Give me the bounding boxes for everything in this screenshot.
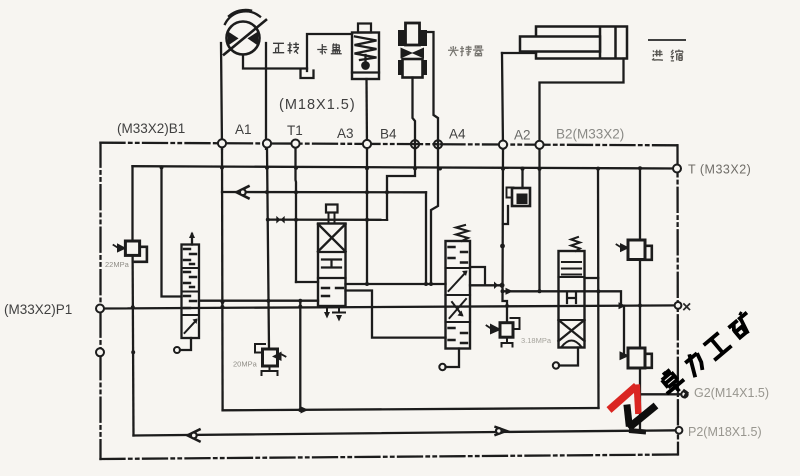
- svg-text:(M18X1.5): (M18X1.5): [279, 97, 356, 113]
- svg-text:(M33X2)B1: (M33X2)B1: [117, 121, 185, 136]
- svg-text:(M33X2)P1: (M33X2)P1: [4, 302, 72, 317]
- svg-text:B4: B4: [380, 127, 397, 142]
- svg-text:A2: A2: [514, 128, 531, 143]
- svg-text:P2(M18X1.5): P2(M18X1.5): [688, 425, 762, 439]
- svg-text:T1: T1: [287, 123, 303, 138]
- svg-text:×: ×: [682, 299, 691, 316]
- svg-text:20MPa: 20MPa: [233, 360, 258, 369]
- svg-text:G2(M14X1.5): G2(M14X1.5): [694, 386, 769, 400]
- svg-text:B2(M33X2): B2(M33X2): [556, 127, 624, 142]
- svg-text:3.18MPa: 3.18MPa: [521, 336, 552, 345]
- svg-text:A1: A1: [235, 122, 252, 137]
- svg-text:T (M33X2): T (M33X2): [688, 163, 751, 177]
- svg-text:A4: A4: [449, 127, 466, 142]
- svg-text:22MPa: 22MPa: [105, 260, 130, 269]
- svg-text:A3: A3: [337, 126, 354, 141]
